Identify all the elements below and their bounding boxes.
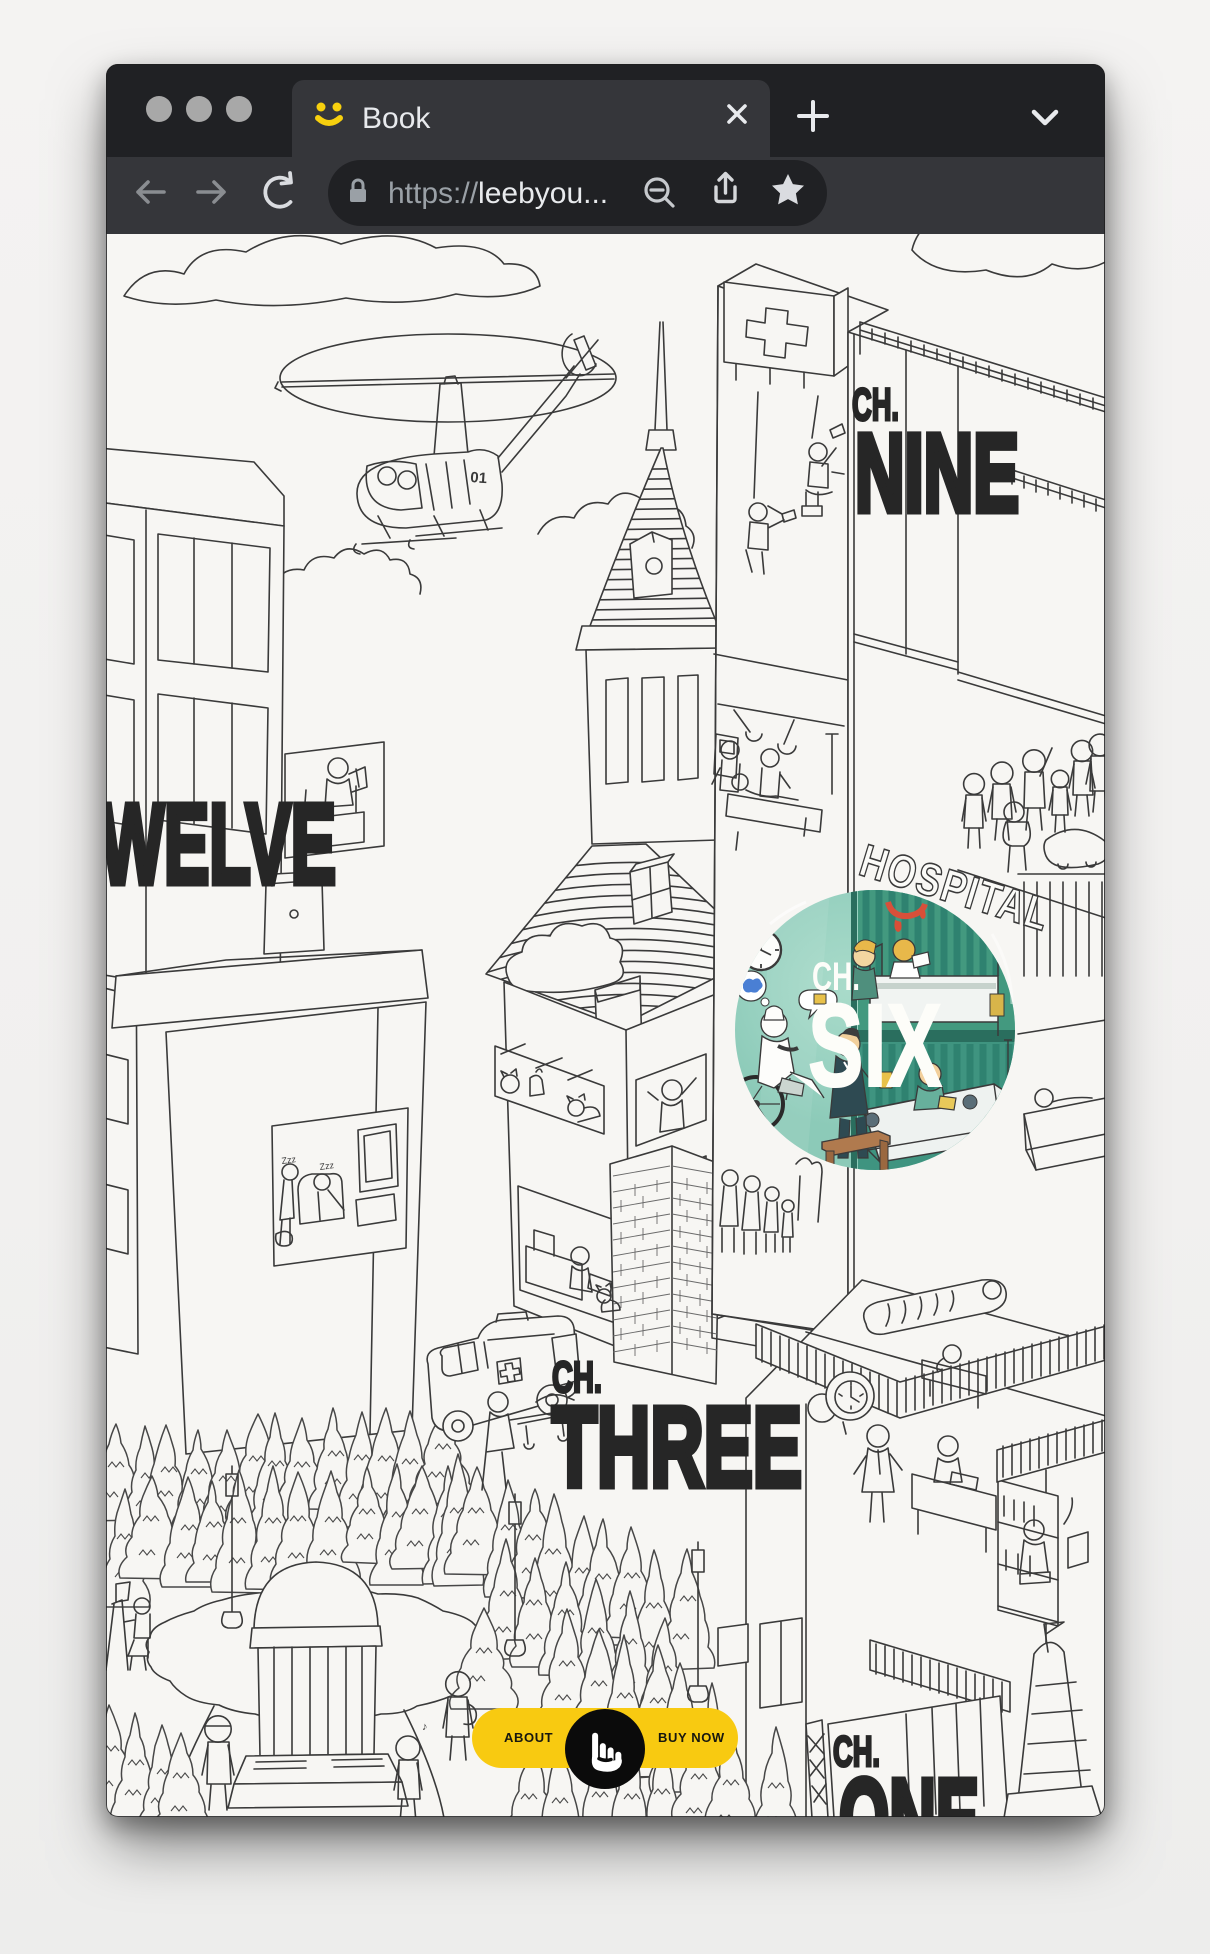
svg-text:01: 01 bbox=[470, 469, 488, 487]
svg-text:WELVE: WELVE bbox=[106, 781, 336, 907]
svg-text:SIX: SIX bbox=[808, 980, 942, 1112]
svg-text:ONE: ONE bbox=[839, 1756, 979, 1817]
svg-text:Zzz: Zzz bbox=[281, 1154, 297, 1166]
svg-text:NINE: NINE bbox=[855, 412, 1019, 535]
svg-text:https://leebyou...: https://leebyou... bbox=[388, 177, 608, 210]
svg-text:♪: ♪ bbox=[422, 1721, 428, 1733]
svg-text:Zzz: Zzz bbox=[319, 1160, 335, 1172]
svg-text:THREE: THREE bbox=[552, 1384, 802, 1510]
